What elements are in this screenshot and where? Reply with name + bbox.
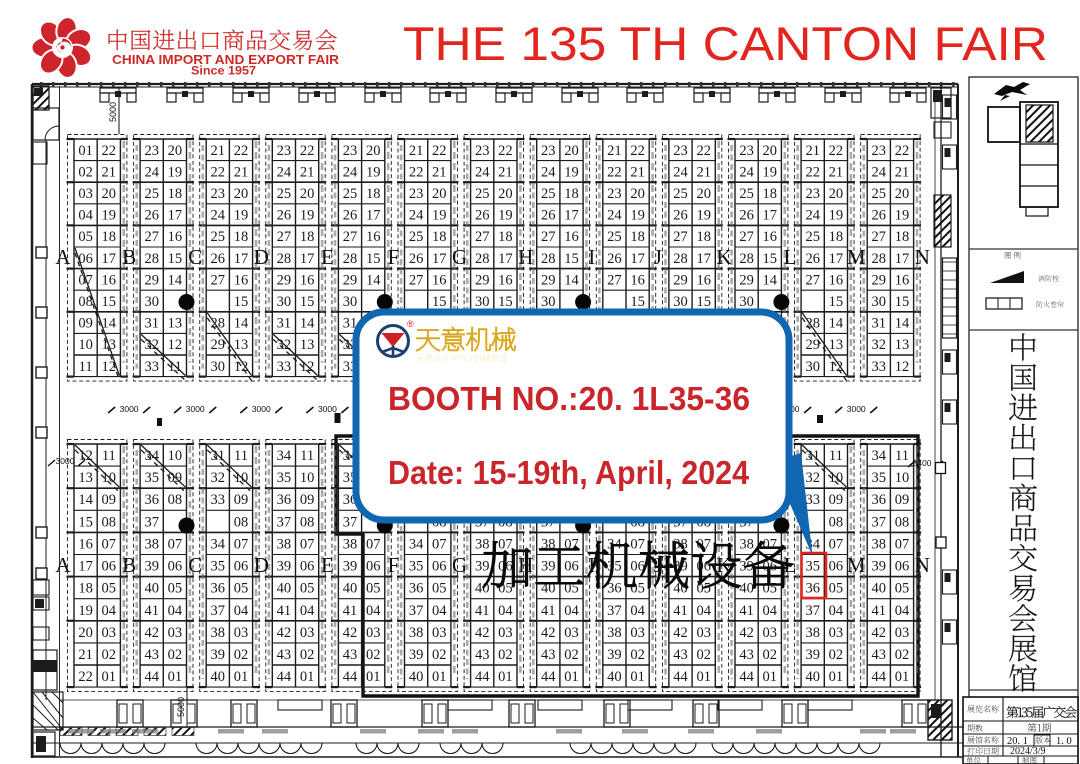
svg-text:19: 19 (630, 208, 645, 224)
svg-text:06: 06 (234, 559, 249, 575)
svg-text:04: 04 (564, 603, 579, 619)
svg-text:29: 29 (805, 337, 820, 353)
svg-text:21: 21 (895, 164, 910, 180)
svg-text:44: 44 (872, 669, 887, 685)
svg-text:19: 19 (168, 164, 183, 180)
svg-text:44: 44 (673, 669, 688, 685)
svg-text:3000: 3000 (120, 404, 139, 414)
svg-text:01: 01 (300, 669, 315, 685)
svg-text:24: 24 (409, 208, 424, 224)
svg-text:17: 17 (432, 251, 447, 267)
svg-text:K: K (716, 245, 731, 269)
svg-text:22: 22 (300, 143, 315, 159)
svg-text:38: 38 (409, 625, 424, 641)
svg-text:17: 17 (102, 251, 117, 267)
svg-text:22: 22 (211, 164, 226, 180)
svg-text:B: B (122, 553, 136, 577)
svg-text:09: 09 (300, 492, 315, 508)
svg-text:25: 25 (144, 186, 159, 202)
svg-text:25: 25 (872, 186, 887, 202)
svg-text:16: 16 (168, 229, 183, 245)
svg-text:16: 16 (498, 272, 513, 288)
svg-text:40: 40 (805, 669, 820, 685)
svg-text:02: 02 (829, 647, 844, 663)
svg-text:39: 39 (872, 559, 887, 575)
svg-text:26: 26 (673, 208, 688, 224)
svg-text:16: 16 (102, 272, 117, 288)
svg-text:24: 24 (872, 164, 887, 180)
svg-text:22: 22 (805, 164, 820, 180)
svg-text:41: 41 (872, 603, 887, 619)
svg-text:34: 34 (277, 448, 292, 464)
svg-text:42: 42 (673, 625, 688, 641)
svg-text:39: 39 (211, 647, 226, 663)
svg-text:33: 33 (277, 359, 292, 375)
svg-text:05: 05 (432, 581, 447, 597)
svg-text:F: F (388, 245, 400, 269)
svg-text:41: 41 (343, 603, 358, 619)
svg-text:28: 28 (872, 251, 887, 267)
svg-text:16: 16 (630, 272, 645, 288)
svg-text:27: 27 (277, 229, 292, 245)
svg-text:17: 17 (895, 251, 910, 267)
svg-text:10: 10 (300, 470, 315, 486)
svg-text:21: 21 (102, 164, 117, 180)
svg-text:15: 15 (78, 514, 93, 530)
svg-text:G: G (452, 553, 467, 577)
svg-text:07: 07 (102, 536, 117, 552)
svg-text:26: 26 (872, 208, 887, 224)
svg-text:01: 01 (432, 669, 447, 685)
svg-text:24: 24 (739, 164, 754, 180)
svg-text:27: 27 (872, 229, 887, 245)
svg-text:31: 31 (872, 316, 887, 332)
svg-text:22: 22 (498, 143, 513, 159)
svg-text:04: 04 (102, 603, 117, 619)
svg-text:02: 02 (168, 647, 183, 663)
svg-text:13: 13 (895, 337, 910, 353)
svg-text:M: M (847, 553, 866, 577)
svg-text:44: 44 (343, 669, 358, 685)
svg-text:BOOTH NO.:20. 1L35-36: BOOTH NO.:20. 1L35-36 (388, 380, 750, 417)
svg-text:Since 1957: Since 1957 (191, 66, 256, 78)
svg-text:20: 20 (366, 143, 381, 159)
svg-text:28: 28 (805, 316, 820, 332)
svg-text:C: C (188, 245, 202, 269)
svg-text:21: 21 (805, 143, 820, 159)
svg-text:27: 27 (739, 229, 754, 245)
svg-text:24: 24 (343, 164, 358, 180)
svg-text:26: 26 (739, 208, 754, 224)
svg-text:D: D (254, 553, 269, 577)
svg-text:30: 30 (211, 359, 226, 375)
svg-text:39: 39 (805, 647, 820, 663)
svg-text:11: 11 (79, 359, 93, 375)
svg-text:24: 24 (673, 164, 688, 180)
svg-text:10: 10 (78, 337, 93, 353)
svg-text:39: 39 (541, 559, 556, 575)
svg-text:28: 28 (211, 316, 226, 332)
svg-text:42: 42 (343, 625, 358, 641)
svg-text:14: 14 (763, 272, 778, 288)
svg-text:01: 01 (102, 669, 117, 685)
svg-text:01: 01 (366, 669, 381, 685)
svg-text:20: 20 (78, 625, 93, 641)
svg-text:03: 03 (432, 625, 447, 641)
svg-text:03: 03 (630, 625, 645, 641)
svg-text:27: 27 (805, 272, 820, 288)
svg-text:21: 21 (829, 164, 844, 180)
svg-text:06: 06 (829, 559, 844, 575)
svg-text:3000: 3000 (847, 404, 866, 414)
svg-text:08: 08 (168, 492, 183, 508)
svg-text:14: 14 (78, 492, 93, 508)
svg-text:35: 35 (409, 559, 424, 575)
svg-text:09: 09 (829, 492, 844, 508)
svg-text:02: 02 (300, 647, 315, 663)
svg-text:THE 135 TH CANTON FAIR: THE 135 TH CANTON FAIR (403, 17, 1048, 70)
svg-text:19: 19 (696, 208, 711, 224)
svg-text:10: 10 (895, 470, 910, 486)
svg-text:43: 43 (739, 647, 754, 663)
svg-text:15: 15 (432, 294, 447, 310)
svg-text:G: G (452, 245, 467, 269)
svg-text:05: 05 (102, 581, 117, 597)
svg-text:21: 21 (498, 164, 513, 180)
svg-text:27: 27 (541, 229, 556, 245)
svg-text:H: H (518, 245, 533, 269)
svg-text:11: 11 (300, 448, 314, 464)
svg-text:06: 06 (564, 559, 579, 575)
svg-text:43: 43 (541, 647, 556, 663)
svg-text:21: 21 (300, 164, 315, 180)
svg-text:21: 21 (211, 143, 226, 159)
svg-text:28: 28 (673, 251, 688, 267)
svg-text:Date: 15-19th, April, 2024: Date: 15-19th, April, 2024 (388, 454, 750, 491)
svg-text:07: 07 (432, 536, 447, 552)
svg-text:13: 13 (234, 337, 249, 353)
svg-text:25: 25 (277, 186, 292, 202)
svg-text:22: 22 (895, 143, 910, 159)
svg-text:02: 02 (696, 647, 711, 663)
svg-text:42: 42 (872, 625, 887, 641)
svg-text:19: 19 (366, 164, 381, 180)
svg-text:27: 27 (144, 229, 159, 245)
svg-text:E: E (321, 553, 334, 577)
svg-text:B: B (122, 245, 136, 269)
svg-text:24: 24 (541, 164, 556, 180)
svg-text:41: 41 (277, 603, 292, 619)
svg-text:15: 15 (498, 294, 513, 310)
svg-text:19: 19 (763, 164, 778, 180)
svg-text:42: 42 (739, 625, 754, 641)
svg-text:15: 15 (366, 251, 381, 267)
svg-text:16: 16 (300, 272, 315, 288)
svg-text:39: 39 (409, 647, 424, 663)
svg-text:I: I (588, 245, 595, 269)
svg-text:44: 44 (277, 669, 292, 685)
svg-text:19: 19 (829, 208, 844, 224)
svg-text:37: 37 (211, 603, 226, 619)
svg-text:31: 31 (144, 316, 159, 332)
svg-text:09: 09 (102, 492, 117, 508)
svg-text:14: 14 (366, 272, 381, 288)
svg-text:01: 01 (630, 669, 645, 685)
svg-text:43: 43 (475, 647, 490, 663)
svg-text:19: 19 (432, 208, 447, 224)
svg-text:23: 23 (673, 143, 688, 159)
svg-text:3000: 3000 (252, 404, 271, 414)
svg-text:16: 16 (696, 272, 711, 288)
svg-text:23: 23 (607, 186, 622, 202)
svg-text:25: 25 (211, 229, 226, 245)
svg-text:01: 01 (895, 669, 910, 685)
svg-text:23: 23 (211, 186, 226, 202)
svg-text:20: 20 (564, 143, 579, 159)
svg-text:25: 25 (739, 186, 754, 202)
svg-text:15: 15 (630, 294, 645, 310)
svg-text:19: 19 (234, 208, 249, 224)
svg-text:40: 40 (144, 581, 159, 597)
svg-text:17: 17 (78, 559, 93, 575)
svg-text:04: 04 (498, 603, 513, 619)
svg-text:17: 17 (696, 251, 711, 267)
svg-text:38: 38 (144, 536, 159, 552)
svg-text:23: 23 (541, 143, 556, 159)
svg-text:03: 03 (366, 625, 381, 641)
svg-text:20: 20 (168, 143, 183, 159)
svg-text:28: 28 (144, 251, 159, 267)
svg-text:17: 17 (630, 251, 645, 267)
svg-text:35: 35 (277, 470, 292, 486)
svg-text:28: 28 (739, 251, 754, 267)
svg-text:04: 04 (234, 603, 249, 619)
svg-text:04: 04 (696, 603, 711, 619)
svg-text:27: 27 (673, 229, 688, 245)
svg-text:06: 06 (895, 559, 910, 575)
svg-text:17: 17 (234, 251, 249, 267)
svg-text:07: 07 (763, 536, 778, 552)
svg-text:01: 01 (829, 669, 844, 685)
svg-text:35: 35 (211, 559, 226, 575)
svg-text:20: 20 (300, 186, 315, 202)
svg-text:29: 29 (343, 272, 358, 288)
svg-text:05: 05 (234, 581, 249, 597)
svg-text:23: 23 (739, 143, 754, 159)
svg-text:3000: 3000 (56, 456, 75, 466)
svg-text:22: 22 (630, 143, 645, 159)
svg-text:32: 32 (872, 337, 887, 353)
svg-text:30: 30 (739, 294, 754, 310)
svg-text:18: 18 (78, 581, 93, 597)
svg-text:18: 18 (763, 186, 778, 202)
svg-text:03: 03 (895, 625, 910, 641)
svg-text:22: 22 (234, 143, 249, 159)
svg-text:27: 27 (409, 272, 424, 288)
svg-text:11: 11 (234, 448, 248, 464)
svg-text:20: 20 (102, 186, 117, 202)
svg-text:17: 17 (168, 208, 183, 224)
svg-text:19: 19 (78, 603, 93, 619)
svg-text:19: 19 (895, 208, 910, 224)
svg-text:24: 24 (144, 164, 159, 180)
svg-text:30: 30 (144, 294, 159, 310)
svg-text:12: 12 (168, 337, 183, 353)
svg-text:14: 14 (829, 316, 844, 332)
svg-text:07: 07 (366, 536, 381, 552)
svg-text:31: 31 (277, 316, 292, 332)
svg-text:40: 40 (343, 581, 358, 597)
svg-text:29: 29 (211, 337, 226, 353)
svg-text:14: 14 (234, 316, 249, 332)
svg-text:20: 20 (498, 186, 513, 202)
svg-text:05: 05 (300, 581, 315, 597)
svg-text:14: 14 (564, 272, 579, 288)
svg-text:27: 27 (211, 272, 226, 288)
svg-text:06: 06 (102, 559, 117, 575)
svg-text:36: 36 (805, 581, 820, 597)
svg-text:27: 27 (343, 229, 358, 245)
svg-text:15: 15 (763, 251, 778, 267)
svg-text:39: 39 (277, 559, 292, 575)
svg-text:16: 16 (78, 536, 93, 552)
svg-text:33: 33 (872, 359, 887, 375)
svg-text:18: 18 (829, 229, 844, 245)
svg-text:32: 32 (211, 470, 226, 486)
svg-text:18: 18 (102, 229, 117, 245)
svg-text:30: 30 (872, 294, 887, 310)
svg-text:A: A (55, 553, 71, 577)
svg-text:44: 44 (475, 669, 490, 685)
svg-text:18: 18 (234, 229, 249, 245)
svg-text:13: 13 (78, 470, 93, 486)
svg-text:30: 30 (673, 294, 688, 310)
svg-text:03: 03 (78, 186, 93, 202)
svg-text:14: 14 (895, 316, 910, 332)
svg-text:27: 27 (607, 272, 622, 288)
svg-text:05: 05 (78, 229, 93, 245)
svg-text:07: 07 (300, 536, 315, 552)
svg-text:29: 29 (475, 272, 490, 288)
svg-text:3000: 3000 (186, 404, 205, 414)
svg-text:26: 26 (475, 208, 490, 224)
svg-text:16: 16 (366, 229, 381, 245)
svg-text:25: 25 (607, 229, 622, 245)
svg-text:17: 17 (763, 208, 778, 224)
svg-text:3400: 3400 (913, 458, 932, 468)
svg-text:01: 01 (564, 669, 579, 685)
svg-text:40: 40 (607, 669, 622, 685)
svg-text:24: 24 (607, 208, 622, 224)
svg-text:41: 41 (673, 603, 688, 619)
svg-text:N: N (915, 245, 930, 269)
svg-text:18: 18 (300, 229, 315, 245)
svg-text:04: 04 (630, 603, 645, 619)
svg-text:E: E (321, 245, 334, 269)
svg-text:41: 41 (144, 603, 159, 619)
svg-text:07: 07 (168, 536, 183, 552)
svg-text:36: 36 (277, 492, 292, 508)
svg-text:16: 16 (432, 272, 447, 288)
svg-text:20: 20 (432, 186, 447, 202)
svg-text:17: 17 (300, 251, 315, 267)
svg-text:26: 26 (343, 208, 358, 224)
svg-text:28: 28 (475, 251, 490, 267)
svg-text:26: 26 (805, 251, 820, 267)
svg-text:34: 34 (211, 536, 226, 552)
svg-text:29: 29 (739, 272, 754, 288)
svg-text:19: 19 (498, 208, 513, 224)
svg-text:22: 22 (409, 164, 424, 180)
svg-text:05: 05 (366, 581, 381, 597)
svg-text:26: 26 (144, 208, 159, 224)
svg-text:04: 04 (763, 603, 778, 619)
svg-text:24: 24 (475, 164, 490, 180)
svg-text:40: 40 (739, 581, 754, 597)
svg-text:24: 24 (211, 208, 226, 224)
svg-text:13: 13 (168, 316, 183, 332)
svg-text:38: 38 (805, 625, 820, 641)
svg-text:24: 24 (277, 164, 292, 180)
svg-text:15: 15 (696, 294, 711, 310)
svg-text:23: 23 (144, 143, 159, 159)
svg-text:42: 42 (475, 625, 490, 641)
svg-text:30: 30 (343, 294, 358, 310)
svg-text:38: 38 (475, 536, 490, 552)
svg-text:16: 16 (234, 272, 249, 288)
svg-text:28: 28 (541, 251, 556, 267)
svg-text:15: 15 (300, 294, 315, 310)
svg-text:D: D (254, 245, 269, 269)
svg-text:17: 17 (829, 251, 844, 267)
svg-text:26: 26 (211, 251, 226, 267)
svg-text:44: 44 (739, 669, 754, 685)
svg-text:16: 16 (763, 229, 778, 245)
svg-text:18: 18 (498, 229, 513, 245)
svg-text:05: 05 (168, 581, 183, 597)
svg-text:20: 20 (829, 186, 844, 202)
svg-text:29: 29 (673, 272, 688, 288)
svg-text:L: L (784, 245, 797, 269)
svg-text:17: 17 (564, 208, 579, 224)
svg-text:21: 21 (696, 164, 711, 180)
svg-text:09: 09 (895, 492, 910, 508)
svg-text:15: 15 (168, 251, 183, 267)
svg-text:17: 17 (498, 251, 513, 267)
svg-text:26: 26 (277, 208, 292, 224)
svg-text:23: 23 (872, 143, 887, 159)
svg-text:17: 17 (366, 208, 381, 224)
svg-text:26: 26 (409, 251, 424, 267)
svg-text:18: 18 (432, 229, 447, 245)
svg-text:39: 39 (144, 559, 159, 575)
svg-text:22: 22 (432, 143, 447, 159)
svg-text:43: 43 (872, 647, 887, 663)
svg-text:20: 20 (234, 186, 249, 202)
svg-text:39: 39 (607, 647, 622, 663)
svg-text:23: 23 (805, 186, 820, 202)
svg-text:35: 35 (144, 470, 159, 486)
svg-text:34: 34 (409, 536, 424, 552)
svg-text:02: 02 (432, 647, 447, 663)
svg-text:11: 11 (102, 448, 116, 464)
svg-text:43: 43 (343, 647, 358, 663)
svg-text:19: 19 (300, 208, 315, 224)
svg-text:03: 03 (102, 625, 117, 641)
svg-text:23: 23 (277, 143, 292, 159)
svg-text:23: 23 (409, 186, 424, 202)
svg-text:21: 21 (78, 647, 93, 663)
